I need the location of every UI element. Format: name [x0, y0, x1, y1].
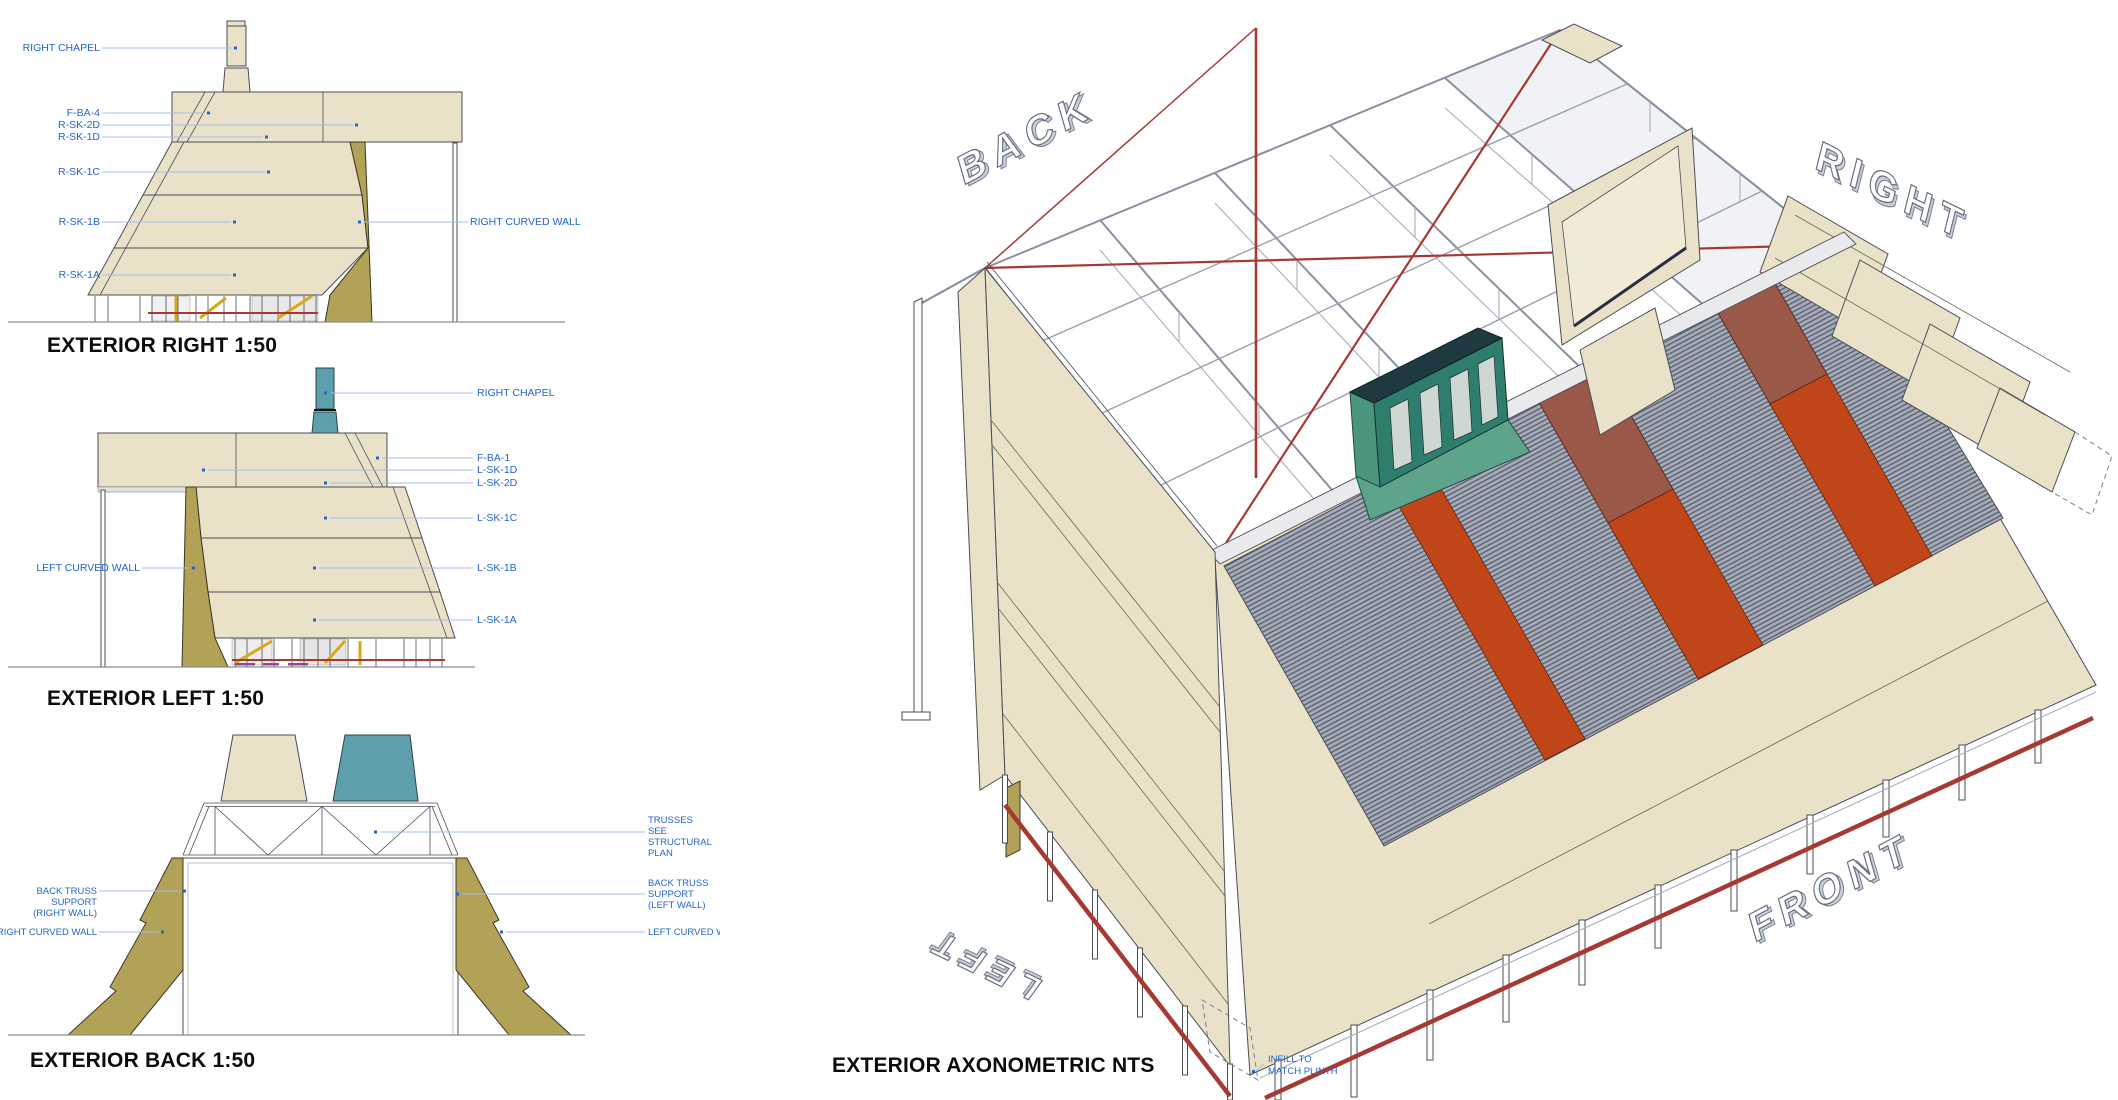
svg-text:R-SK-1C: R-SK-1C [58, 166, 100, 178]
label-infill: INFILL TO [1268, 1054, 1312, 1065]
svg-text:L-SK-1B: L-SK-1B [477, 562, 517, 574]
hall [183, 858, 458, 1035]
svg-text:BACK TRUSS: BACK TRUSS [36, 886, 97, 897]
purple-mark [263, 663, 279, 666]
exterior-right-title: EXTERIOR RIGHT 1:50 [47, 334, 277, 357]
exterior-back-title: EXTERIOR BACK 1:50 [30, 1049, 255, 1072]
label-right-chapel: RIGHT CHAPEL [324, 387, 555, 399]
roof-strip-1c [143, 142, 362, 195]
svg-text:SEE: SEE [648, 826, 667, 837]
column [101, 490, 105, 667]
svg-text:LEFT CURVED WALL: LEFT CURVED WALL [648, 927, 720, 938]
svg-text:L-SK-1D: L-SK-1D [477, 464, 518, 476]
svg-text:FRONT: FRONT [1744, 821, 1918, 951]
chapel-cap [227, 21, 245, 26]
roof-strip-1b [114, 195, 368, 248]
left-elevation-drawing [8, 368, 475, 667]
svg-text:R-SK-1B: R-SK-1B [59, 216, 100, 228]
purple-mark [235, 663, 255, 666]
svg-text:PLAN: PLAN [648, 848, 673, 859]
label-right-chapel: RIGHT CHAPEL [23, 42, 237, 54]
fascia-band [172, 92, 462, 142]
label-f-ba-1: F-BA-1 [376, 452, 510, 464]
exterior-axonometric-title: EXTERIOR AXONOMETRIC NTS [832, 1054, 1155, 1077]
label-trusses: TRUSSES SEE STRUCTURAL PLAN [374, 815, 712, 859]
exterior-back-view: BACK TRUSS SUPPORT (RIGHT WALL) RIGHT CU… [0, 715, 720, 1100]
label-left-curved-wall: LEFT CURVED WALL [500, 927, 720, 938]
front-3d-label: FRONT FRONT [1744, 820, 1922, 955]
exterior-left-title: EXTERIOR LEFT 1:50 [47, 687, 264, 710]
label-left-curved-wall: LEFT CURVED WALL [36, 562, 195, 574]
column [453, 143, 457, 322]
svg-text:RIGHT CHAPEL: RIGHT CHAPEL [23, 42, 101, 54]
svg-text:SUPPORT: SUPPORT [51, 897, 97, 908]
left-curved-wall-shape [456, 858, 571, 1035]
roof-strip-1a [88, 248, 368, 295]
drawing-sheet: RIGHT CHAPEL F-BA-4 R-SK-2D R-SK-1D R-SK… [0, 0, 2118, 1100]
chapel-teal [333, 735, 418, 801]
svg-text:F-BA-1: F-BA-1 [477, 452, 510, 464]
right-curved-wall-shape [68, 858, 183, 1035]
yellow-strut [200, 298, 226, 318]
back-truss [183, 803, 458, 859]
svg-text:STRUCTURAL: STRUCTURAL [648, 837, 712, 848]
svg-text:R-SK-1A: R-SK-1A [59, 269, 100, 281]
svg-text:MATCH PLINTH: MATCH PLINTH [1268, 1066, 1338, 1077]
exterior-right-view: RIGHT CHAPEL F-BA-4 R-SK-2D R-SK-1D R-SK… [0, 0, 620, 360]
chapel-flare [223, 68, 250, 92]
chapel-cream [221, 735, 307, 801]
svg-text:RIGHT CURVED WALL: RIGHT CURVED WALL [470, 216, 581, 228]
chapel-shaft [227, 26, 246, 66]
chapel-shaft-teal [316, 368, 334, 409]
svg-text:BACK TRUSS: BACK TRUSS [648, 878, 709, 889]
svg-text:(LEFT WALL): (LEFT WALL) [648, 900, 706, 911]
exterior-axonometric-view: BACK BACK RIGHT RIGHT [830, 0, 2118, 1100]
svg-text:RIGHT CHAPEL: RIGHT CHAPEL [477, 387, 555, 399]
svg-text:RIGHT CURVED WALL: RIGHT CURVED WALL [0, 927, 97, 938]
back-3d-label: BACK BACK [953, 77, 1103, 197]
label-back-truss-support-left: BACK TRUSS SUPPORT (LEFT WALL) [456, 878, 709, 911]
svg-text:(RIGHT WALL): (RIGHT WALL) [33, 908, 97, 919]
svg-text:R-SK-2D: R-SK-2D [58, 119, 100, 131]
svg-text:F-BA-4: F-BA-4 [67, 107, 100, 119]
svg-text:L-SK-1A: L-SK-1A [477, 614, 517, 626]
roof-strip-1c [196, 487, 422, 538]
exterior-left-view: RIGHT CHAPEL F-BA-1 L-SK-1D L-SK-2D L-SK… [0, 365, 640, 710]
purple-mark [288, 663, 308, 666]
roof-strip-1b [201, 538, 440, 592]
svg-text:L-SK-2D: L-SK-2D [477, 477, 518, 489]
svg-text:LEFT CURVED WALL: LEFT CURVED WALL [36, 562, 140, 574]
roof-strip-1a [208, 592, 455, 638]
chapel-flare-teal [312, 412, 338, 433]
label-right-curved-wall: RIGHT CURVED WALL [358, 216, 581, 228]
base-structure [232, 639, 445, 667]
svg-text:L-SK-1C: L-SK-1C [477, 512, 518, 524]
svg-text:R-SK-1D: R-SK-1D [58, 131, 100, 143]
base-structure [95, 296, 318, 322]
svg-text:SUPPORT: SUPPORT [648, 889, 694, 900]
fascia-band [98, 433, 387, 487]
svg-text:TRUSSES: TRUSSES [648, 815, 693, 826]
left-3d-label: LEFT LEFT [915, 918, 1051, 1006]
back-elevation-drawing [8, 735, 585, 1035]
